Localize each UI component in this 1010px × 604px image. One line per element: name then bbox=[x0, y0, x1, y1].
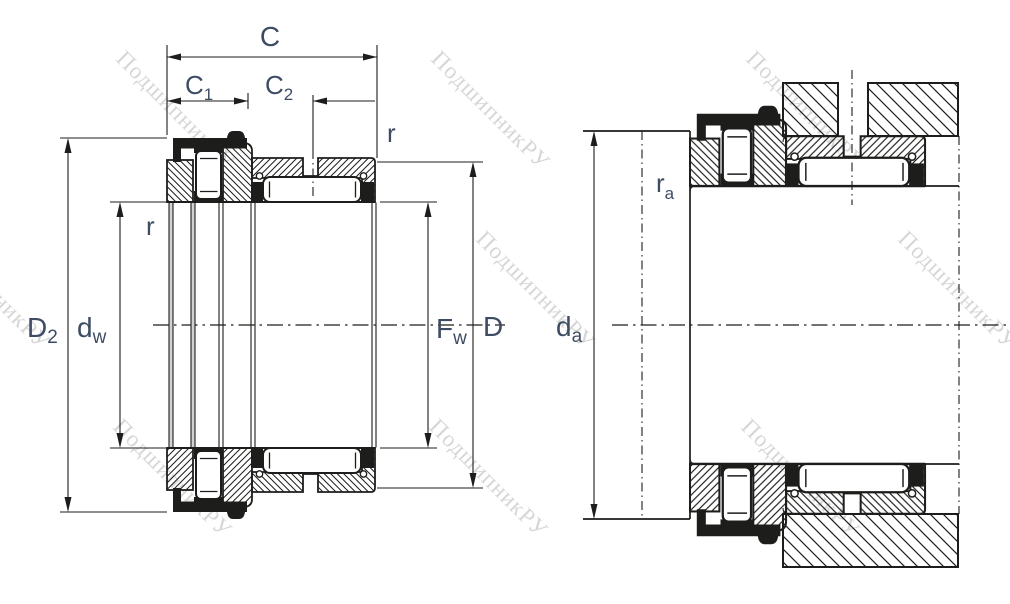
watermark-text: ПодшипникРУ bbox=[893, 226, 1010, 355]
dim-label-c2: C2 bbox=[265, 70, 293, 104]
dim-label-d: D bbox=[483, 311, 503, 342]
dim-label-ra: ra bbox=[656, 168, 675, 203]
dim-label-fw: Fw bbox=[436, 313, 467, 349]
left-view-bearing-section: C C1 C2 r r D2 d bbox=[27, 21, 505, 519]
dim-label-dw: dw bbox=[77, 312, 107, 348]
watermark-text: ПодшипникРУ bbox=[424, 414, 553, 543]
watermark-text: ПодшипникРУ bbox=[426, 46, 555, 175]
drawing-canvas: ПодшипникРУ ПодшипникРУ ПодшипникРУ Подш… bbox=[0, 0, 1010, 604]
housing-bottom-block bbox=[783, 508, 958, 567]
dim-label-r-top: r bbox=[387, 118, 396, 148]
right-view-mounting-section: da ra bbox=[556, 70, 1008, 567]
housing-top-block bbox=[783, 83, 958, 142]
dim-label-r-left: r bbox=[146, 211, 155, 241]
dim-label-c: C bbox=[260, 21, 280, 52]
bearing-technical-drawing: ПодшипникРУ ПодшипникРУ ПодшипникРУ Подш… bbox=[0, 0, 1010, 604]
dim-label-d2: D2 bbox=[27, 312, 58, 348]
dim-label-c1: C1 bbox=[185, 70, 213, 104]
